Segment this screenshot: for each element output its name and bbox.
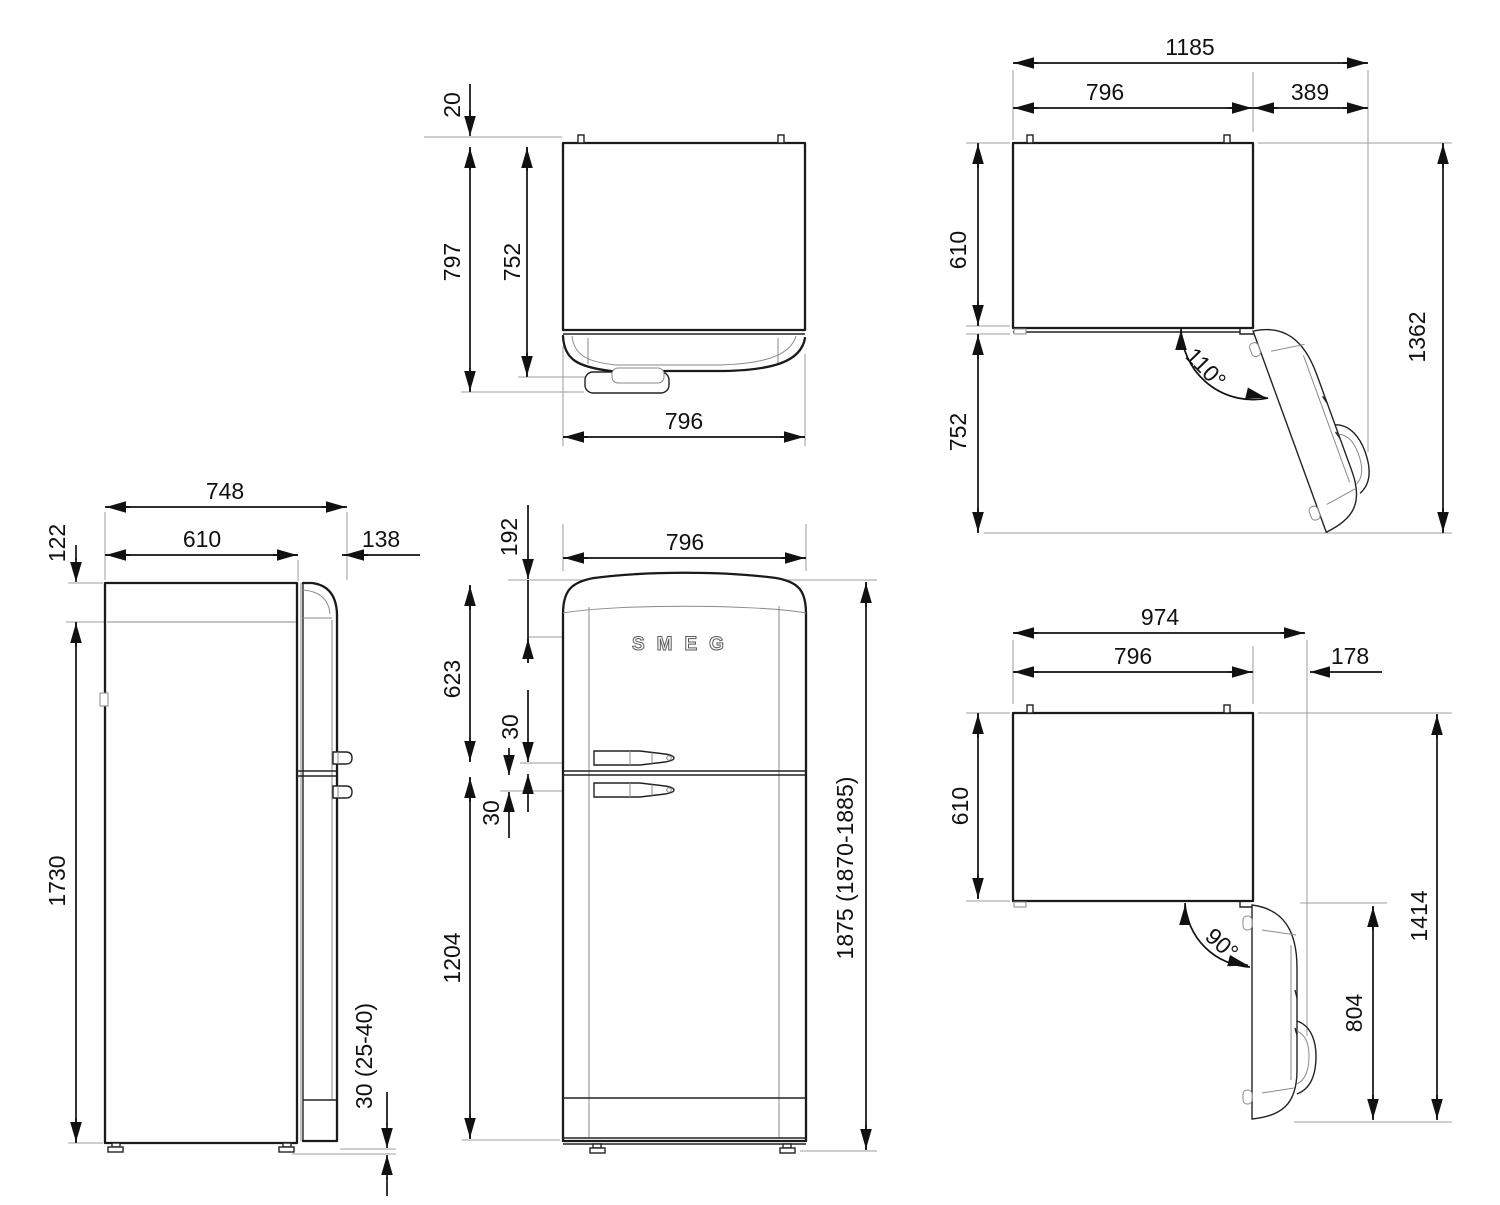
door-handle (594, 751, 674, 765)
door-handle (333, 752, 352, 764)
hinge-pin (1224, 705, 1230, 713)
cabinet-outline (1013, 713, 1253, 901)
dim-door-depth-label: 138 (362, 526, 400, 552)
dimension-drawing: 20 797 752 796 (0, 0, 1500, 1200)
dim-width-cabinet-label: 796 (1114, 643, 1152, 669)
dim-height-cabinet-label: 1730 (44, 855, 70, 906)
door-open-110 (1245, 309, 1387, 535)
dim-depth-cabinet-label: 610 (183, 526, 221, 552)
dim-depth-cabinet-label: 752 (499, 243, 525, 281)
foot (1014, 902, 1026, 907)
cabinet-outline (563, 573, 806, 1141)
dim-clearance-label: 178 (1331, 643, 1369, 669)
plan-view-door-90: 974 796 178 610 804 1414 90° (947, 604, 1452, 1122)
hinge-pin (1027, 135, 1033, 143)
dim-width-label: 796 (666, 529, 704, 555)
dim-depth-cabinet-label: 610 (945, 231, 971, 269)
dim-handle-gap-lower-label: 30 (478, 800, 504, 826)
hinge-plate (1240, 329, 1254, 334)
dim-width-cabinet-label: 796 (1086, 79, 1124, 105)
dim-handle-gap-upper-label: 30 (497, 714, 523, 740)
dim-upper-door-label: 623 (439, 660, 465, 698)
dim-door-projection-label: 752 (945, 413, 971, 451)
dim-feet-height-label: 30 (25-40) (351, 1003, 377, 1109)
dim-top-inset-label: 122 (44, 524, 70, 562)
dim-depth-cabinet-label: 610 (947, 787, 973, 825)
rear-latch (100, 693, 108, 706)
foot (1014, 329, 1026, 334)
hinge-pin (578, 135, 584, 143)
dim-height-total-label: 1875 (1870-1885) (832, 777, 858, 960)
dim-width-total-label: 1185 (1165, 34, 1214, 60)
door-curve (563, 336, 805, 371)
feet (108, 1143, 294, 1152)
dim-clearance-label: 389 (1291, 79, 1329, 105)
dim-width-label: 796 (665, 408, 703, 434)
drawing-page: 20 797 752 796 (0, 0, 1500, 1200)
feet (590, 1144, 795, 1153)
cabinet-outline (105, 583, 297, 1143)
cabinet-outline (1013, 143, 1253, 328)
door-handle (333, 786, 352, 798)
dim-depth-total-open-label: 1362 (1404, 311, 1430, 362)
door-open-90 (1243, 905, 1316, 1119)
dim-lower-door-label: 1204 (439, 932, 465, 983)
front-view: SMEG (439, 505, 877, 1153)
door-angle-label: 110° (1181, 342, 1232, 393)
brand-logo: SMEG (632, 634, 736, 655)
door-handle (594, 783, 674, 797)
side-view: 748 610 138 122 1730 30 (25-40) (44, 478, 420, 1196)
dim-logo-drop-label: 192 (496, 518, 522, 556)
dim-depth-total-label: 748 (206, 478, 244, 504)
dim-depth-total-label: 797 (439, 243, 465, 281)
dim-pin-gap-label: 20 (439, 92, 465, 118)
top-view: 20 797 752 796 (424, 84, 805, 446)
cabinet-outline (563, 143, 805, 330)
hinge-pin (1027, 705, 1033, 713)
dim-width-total-label: 974 (1141, 604, 1180, 630)
hinge-pin (1224, 135, 1230, 143)
dim-door-projection-label: 804 (1341, 994, 1367, 1033)
hinge-pin (778, 135, 784, 143)
plan-view-door-110: 1185 796 389 610 752 1362 110° (945, 34, 1452, 535)
dim-depth-total-open-label: 1414 (1406, 890, 1432, 941)
door-angle-label: 90° (1200, 923, 1243, 966)
